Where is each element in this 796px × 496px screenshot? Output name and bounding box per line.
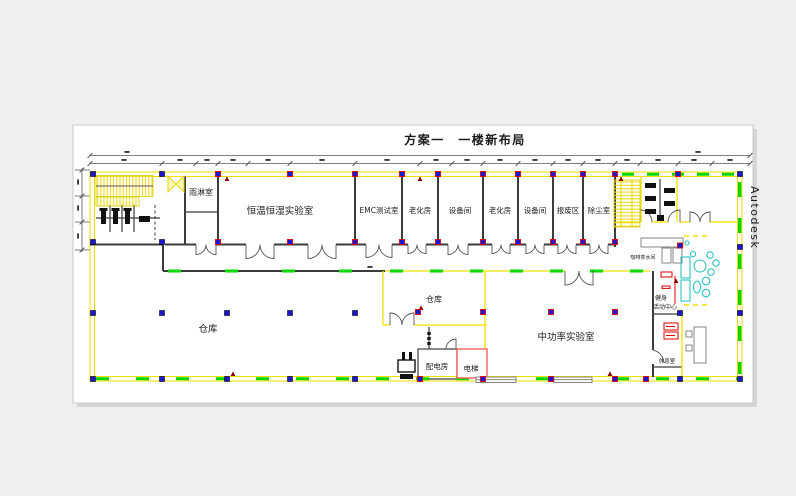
room-label-aging-1: 老化房 xyxy=(409,205,432,215)
room-label-equip-1: 设备间 xyxy=(449,205,472,215)
room-label-equip-2: 设备间 xyxy=(524,205,547,215)
drawing-title: 方案一 一楼新布局 xyxy=(404,132,526,147)
room-label-coffee: 咖啡茶水间 xyxy=(630,254,655,261)
floor-plan-canvas[interactable]: 方案一 一楼新布局 雨淋室 恒温恒湿实验室 EMC测试室 老化房 设备间 老化房… xyxy=(0,0,796,496)
cad-viewport: 方案一 一楼新布局 雨淋室 恒温恒湿实验室 EMC测试室 老化房 设备间 老化房… xyxy=(0,0,796,496)
autodesk-watermark: Autodesk xyxy=(748,186,761,249)
room-label-mid-power: 中功率实验室 xyxy=(537,331,594,343)
room-label-emc: EMC测试室 xyxy=(360,205,399,215)
room-label-warehouse-small: 仓库 xyxy=(426,294,442,304)
room-label-dust: 除尘室 xyxy=(588,205,611,215)
room-label-elevator: 电梯 xyxy=(464,363,479,373)
room-label-rain: 雨淋室 xyxy=(189,187,213,197)
room-label-fitness-1: 健身 xyxy=(655,294,667,302)
room-label-rest: 休息室 xyxy=(659,357,676,365)
room-label-fitness-2: 活动中心 xyxy=(653,303,677,311)
room-label-climate-lab: 恒温恒湿实验室 xyxy=(247,205,314,217)
drawing-sheet xyxy=(73,125,753,403)
room-label-power: 配电房 xyxy=(426,361,449,371)
room-label-warehouse-main: 仓库 xyxy=(198,323,218,335)
stairs-top-right xyxy=(614,180,640,227)
room-label-aging-2: 老化房 xyxy=(489,205,512,215)
room-label-scrap: 报废区 xyxy=(557,205,580,215)
